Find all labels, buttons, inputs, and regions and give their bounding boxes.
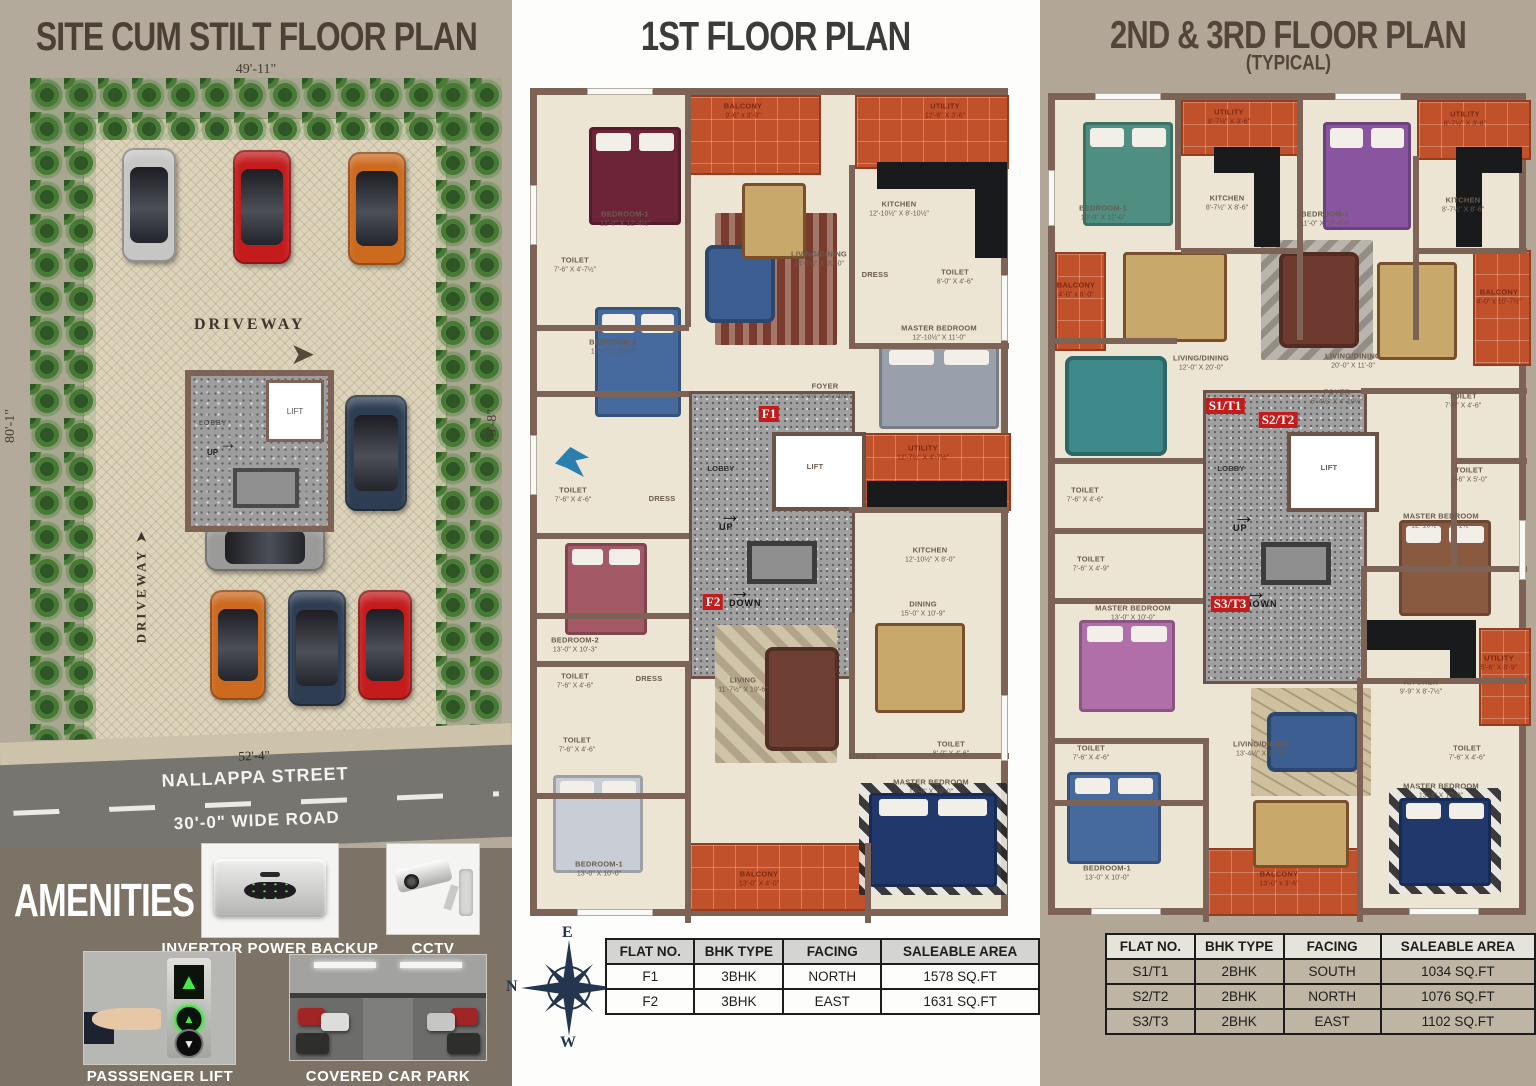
stairs-up: →UP xyxy=(719,507,741,532)
room-label: DINING15'-0" X 10'-9" xyxy=(901,600,945,619)
room-label: TOILET8'-0" X 4'-6" xyxy=(933,740,969,759)
car-orange xyxy=(210,590,266,700)
room-label: DRESS xyxy=(850,752,877,762)
typical-floor-panel: 2ND & 3RD FLOOR PLAN (TYPICAL) xyxy=(1040,0,1536,1086)
flats-table-first-floor: FLAT NO. BHK TYPE FACING SALEABLE AREA F… xyxy=(605,938,1040,1015)
car-windows xyxy=(366,609,405,682)
driving-lane xyxy=(363,998,414,1060)
room-label: LIFT xyxy=(1321,463,1338,473)
wall xyxy=(1055,528,1203,534)
balcony-tile xyxy=(1473,250,1531,366)
room-label: LOBBY xyxy=(1217,464,1244,474)
flat-tag-f1: F1 xyxy=(759,406,779,422)
room-label: TOILET7'-6" X 4'-6" xyxy=(1449,744,1485,763)
lift-panel: ▲ ▲ ▼ xyxy=(167,958,211,1059)
room-label: KITCHEN8'-7½" X 8'-6" xyxy=(1442,196,1484,215)
hedge-left xyxy=(30,78,96,740)
cctv-photo xyxy=(387,844,479,934)
bed xyxy=(565,543,647,635)
up-arrow-icon: → xyxy=(219,434,237,452)
room-label: TOILET7'-6" X 4'-6" xyxy=(555,486,591,505)
wall xyxy=(849,673,855,759)
dining-table xyxy=(875,623,965,713)
room-label: MASTER BEDROOM13'-0" X 10'-0" xyxy=(1095,604,1171,623)
wall xyxy=(1451,458,1527,464)
camera-arm xyxy=(443,885,459,912)
stair-landing xyxy=(1261,542,1331,585)
bed xyxy=(879,345,999,429)
window xyxy=(1095,93,1161,100)
window xyxy=(1335,93,1401,100)
first-floor-plan: →UP →DOWN F1 F2 BALCONY9'-6" x 3'-9" UTI… xyxy=(530,88,1008,916)
window xyxy=(1048,170,1055,226)
down-arrow-icon: → xyxy=(1245,584,1278,599)
amenity-caption-carpark: COVERED CAR PARK xyxy=(290,1068,486,1085)
room-label: LIVING/DINING20'-0" X 11'-0" xyxy=(1325,352,1381,371)
flat-tag-s1t1: S1/T1 xyxy=(1206,398,1245,414)
room-label: BEDROOM-113'-0" X 10'-0" xyxy=(1083,864,1131,883)
wall xyxy=(537,661,689,667)
site-dim-top: 49'-11" xyxy=(0,62,512,78)
amenities-section: AMENITIES INVERTOR POWER BACKUP CCTV ▲ ▲… xyxy=(0,848,512,1086)
room-label: LIVING/DINING13'-4½" X 20'-0" xyxy=(1233,740,1289,759)
room-label: BEDROOM-111'-0" X 12'-4½" xyxy=(1300,210,1350,229)
room-label: LIFT xyxy=(807,462,824,472)
bed xyxy=(1079,620,1175,712)
balcony-tile xyxy=(689,843,871,911)
wall xyxy=(1175,100,1181,250)
wall xyxy=(1055,338,1177,344)
wall xyxy=(537,793,689,799)
car-red xyxy=(358,590,412,700)
room-label: DRESS xyxy=(636,674,663,684)
wall xyxy=(849,613,855,673)
parked-car xyxy=(321,1013,348,1031)
wall xyxy=(849,507,1009,513)
brochure-page: SITE CUM STILT FLOOR PLAN 49'-11" LIFT L… xyxy=(0,0,1536,1086)
compass-east: E xyxy=(562,924,573,942)
hedge-top xyxy=(30,78,482,140)
hand xyxy=(92,1008,161,1030)
room-label: TOILET7'-6" X 4'-6" xyxy=(557,672,593,691)
room-label: LIVING/DINING14'-1½" X 20'-0" xyxy=(791,250,847,269)
wall xyxy=(849,165,855,347)
road-width-label: 30'-0" WIDE ROAD xyxy=(0,800,521,841)
window xyxy=(1001,695,1008,761)
wall xyxy=(1203,738,1209,922)
wall xyxy=(685,661,691,923)
up-arrow-icon: → xyxy=(1233,508,1255,523)
site-dim-right: 79'-8" xyxy=(485,409,501,443)
wall xyxy=(1413,156,1419,340)
wall xyxy=(1361,566,1367,682)
room-label: DRESS xyxy=(862,270,889,280)
room-label: LOBBY xyxy=(707,464,734,474)
parked-car xyxy=(447,1033,480,1054)
room-label: BALCONY13'-0" x 3'-6" xyxy=(1259,870,1298,889)
room-label: UTILITY12'-6" X 3'-6" xyxy=(925,102,965,121)
down-arrow-icon: → xyxy=(729,583,762,598)
room-label: MASTER BEDROOM13'-3" X 10'-0" xyxy=(1403,782,1479,801)
table-row: S3/T32BHK EAST1102 SQ.FT xyxy=(1106,1009,1535,1034)
wall xyxy=(537,613,689,619)
cctv-camera xyxy=(394,857,453,893)
room-label: MASTER BEDROOM12'-10½" X 10'-1½" xyxy=(1403,512,1479,531)
compass-west: W xyxy=(560,1034,576,1052)
window xyxy=(1001,275,1008,341)
car-windows xyxy=(354,415,399,492)
lift-down-button: ▼ xyxy=(174,1029,203,1058)
car-orange xyxy=(348,152,406,265)
lift-screen: ▲ xyxy=(174,965,204,999)
parked-car xyxy=(296,1033,329,1054)
lobby-label: LOBBY xyxy=(199,420,227,427)
car-navy xyxy=(345,395,407,511)
window xyxy=(1519,520,1526,580)
car-windows xyxy=(218,609,258,682)
room-label: TOILET7'-6" X 4'-6" xyxy=(559,736,595,755)
wall xyxy=(1181,248,1301,254)
inverter-panel xyxy=(244,882,295,899)
room-label: KITCHEN8'-7½" X 8'-6" xyxy=(1206,194,1248,213)
bed xyxy=(1399,798,1491,886)
room-label: FOYER5'-4½" X 4'-10½" xyxy=(1311,388,1363,407)
driveway-label-vertical: DRIVEWAY ➤ xyxy=(133,529,149,644)
window xyxy=(1409,908,1479,915)
parked-car xyxy=(451,1008,478,1026)
ceiling-lamp xyxy=(314,962,377,967)
bed xyxy=(553,775,643,873)
decor-blue-ornament xyxy=(555,447,589,477)
wall xyxy=(1055,458,1203,464)
compass-north: N xyxy=(506,978,518,996)
first-floor-title: 1ST FLOOR PLAN xyxy=(512,16,1040,59)
room-label: KITCHEN12'-10½" X 8'-0" xyxy=(905,546,955,565)
car-silver xyxy=(122,148,176,262)
room-label: BEDROOM-212'-0" X 15'-0" xyxy=(589,338,637,357)
room-label: FOYER5'-4½" X 4'-10½" xyxy=(799,382,851,401)
lift-photo: ▲ ▲ ▼ xyxy=(84,952,235,1064)
car-park-photo xyxy=(290,955,486,1060)
room-label: BEDROOM-110'-0" X 12'-0" xyxy=(1079,204,1127,223)
table-row: F13BHK NORTH1578 SQ.FT xyxy=(606,964,1039,989)
table-row: S2/T22BHK NORTH1076 SQ.FT xyxy=(1106,984,1535,1009)
window xyxy=(530,435,537,495)
dining-table xyxy=(1123,252,1227,342)
stairs-up: →UP xyxy=(1233,508,1255,533)
site-plan-panel: SITE CUM STILT FLOOR PLAN 49'-11" LIFT L… xyxy=(0,0,512,848)
inverter-device xyxy=(214,859,326,915)
room-label: MASTER BEDROOM12'-10½" X 11'-0" xyxy=(901,324,977,343)
wall xyxy=(1361,566,1527,572)
room-label: UTILITY8'-7½" X 3'-6" xyxy=(1444,110,1486,129)
car-windows xyxy=(296,610,338,687)
typical-floor-plan: →UP →DOWN S1/T1 S2/T2 S3/T3 BEDROOM-110'… xyxy=(1048,93,1526,915)
window xyxy=(587,88,653,95)
lift: LIFT xyxy=(266,380,324,442)
bed xyxy=(595,307,681,417)
sofa xyxy=(1279,252,1359,348)
inverter-photo xyxy=(202,844,338,937)
flat-tag-s2t2: S2/T2 xyxy=(1259,412,1298,428)
window xyxy=(1091,908,1161,915)
up-arrow-icon: → xyxy=(719,507,741,522)
stair-landing xyxy=(233,468,299,508)
kitchen-counter xyxy=(1450,620,1476,682)
stairs-down: →DOWN xyxy=(729,583,762,608)
room-label: TOILET7'-6" X 4'-6" xyxy=(1067,486,1103,505)
site-plan-drawing: LIFT LOBBY → UP DRIVEWAY ➤ DRIVEWAY ➤ 80… xyxy=(8,78,504,754)
room-label: MASTER BEDROOM15'-0" X 10'-0" xyxy=(893,778,969,797)
window xyxy=(530,185,537,245)
camera-mount xyxy=(459,869,474,916)
compass-star xyxy=(519,938,619,1038)
wall xyxy=(537,391,689,397)
inverter-slot xyxy=(260,872,280,876)
window xyxy=(577,909,653,916)
amenities-title: AMENITIES xyxy=(14,874,194,927)
car-windows xyxy=(225,530,304,565)
wall xyxy=(1417,248,1527,254)
typical-floor-subtitle: (TYPICAL) xyxy=(1040,52,1536,75)
room-label: TOILET7'-6" X 4'-9" xyxy=(1073,555,1109,574)
dining-table xyxy=(742,183,806,259)
room-label: BALCONY9'-6" x 3'-9" xyxy=(724,102,762,121)
first-floor-panel: 1ST FLOOR PLAN xyxy=(512,0,1040,1086)
room-label: BALCONY4'-0" x 8'-0" xyxy=(1057,281,1095,300)
dining-table xyxy=(1253,800,1349,868)
sofa xyxy=(1065,356,1167,456)
room-label: UTILITY5'-6" X 8'-9" xyxy=(1481,654,1517,673)
road: 52'-4" NALLAPPA STREET 30'-0" WIDE ROAD xyxy=(0,744,522,857)
wall xyxy=(1361,678,1527,684)
room-label: TOILET8'-0" X 4'-6" xyxy=(937,268,973,287)
room-label: TOILET7'-6" X 4'-7½" xyxy=(554,256,596,275)
utility-tile xyxy=(1479,628,1531,726)
wall xyxy=(537,533,689,539)
wall xyxy=(865,843,871,923)
camera-lens-icon xyxy=(402,872,420,890)
room-label: TOILET7'-6" X 5'-0" xyxy=(1451,466,1487,485)
sofa xyxy=(765,647,839,751)
car-red xyxy=(233,150,291,264)
bed xyxy=(1067,772,1161,864)
car-windows xyxy=(356,171,398,246)
room-label: TOILET7'-6" X 4'-6" xyxy=(1445,392,1481,411)
wall xyxy=(1055,800,1203,806)
room-label: UTILITY12'-7½" X 4'-7½" xyxy=(897,444,949,463)
room-label: BALCONY4'-0" x 10'-7½" xyxy=(1477,288,1522,307)
site-dim-left: 80'-1" xyxy=(3,409,19,443)
stilt-stair-core: LIFT LOBBY → UP xyxy=(185,370,334,532)
room-label: UTILITY8'-7½" X 3'-6" xyxy=(1208,108,1250,127)
room-label: LIVING/DINING12'-0" X 20'-0" xyxy=(1173,354,1229,373)
wall xyxy=(849,343,1009,349)
flat-tag-s3t3: S3/T3 xyxy=(1211,596,1250,612)
flat-tag-f2: F2 xyxy=(703,594,723,610)
up-label: UP xyxy=(207,448,218,457)
car-windows xyxy=(241,169,283,244)
wall xyxy=(537,325,689,331)
room-label: DRESS xyxy=(649,494,676,504)
room-label: BEDROOM-113'-0" X 10'-0" xyxy=(575,860,623,879)
car-navy xyxy=(288,590,346,706)
stair-landing xyxy=(747,541,817,584)
kitchen-counter xyxy=(975,162,1007,258)
room-label: LIVING11'-7½" X 19'-6" xyxy=(718,676,768,695)
driveway-label: DRIVEWAY xyxy=(194,316,305,334)
driveway-arrow-icon: ➤ xyxy=(290,340,315,370)
room-label: KITCHEN12'-10½" X 8'-10½" xyxy=(869,200,929,219)
typical-floor-title: 2ND & 3RD FLOOR PLAN xyxy=(1040,14,1536,56)
room-label: BALCONY13'-0" X 4'-0" xyxy=(739,870,779,889)
kitchen-counter xyxy=(1254,147,1280,247)
room-label: KITCHEN9'-9" X 8'-7½" xyxy=(1400,678,1442,697)
flats-table-typical: FLAT NO. BHK TYPE FACING SALEABLE AREA S… xyxy=(1105,933,1536,1035)
car-windows xyxy=(130,167,169,242)
amenity-caption-lift: PASSSENGER LIFT xyxy=(60,1068,260,1085)
bed xyxy=(869,793,997,887)
room-label: TOILET7'-6" X 4'-6" xyxy=(1073,744,1109,763)
site-plan-title: SITE CUM STILT FLOOR PLAN xyxy=(0,16,512,58)
wall xyxy=(1357,678,1363,922)
room-label: BEDROOM-213'-0" X 10'-3" xyxy=(551,636,599,655)
table-row: S1/T12BHK SOUTH1034 SQ.FT xyxy=(1106,959,1535,984)
ceiling-lamp xyxy=(400,962,463,967)
room-label: BEDROOM-112'-0" X 12'-4½" xyxy=(600,210,650,229)
balcony-tile xyxy=(1055,252,1106,351)
wall xyxy=(685,95,691,327)
parked-car xyxy=(427,1013,454,1031)
stairs-down: →DOWN xyxy=(1245,584,1278,609)
table-row: F23BHK EAST1631 SQ.FT xyxy=(606,989,1039,1014)
